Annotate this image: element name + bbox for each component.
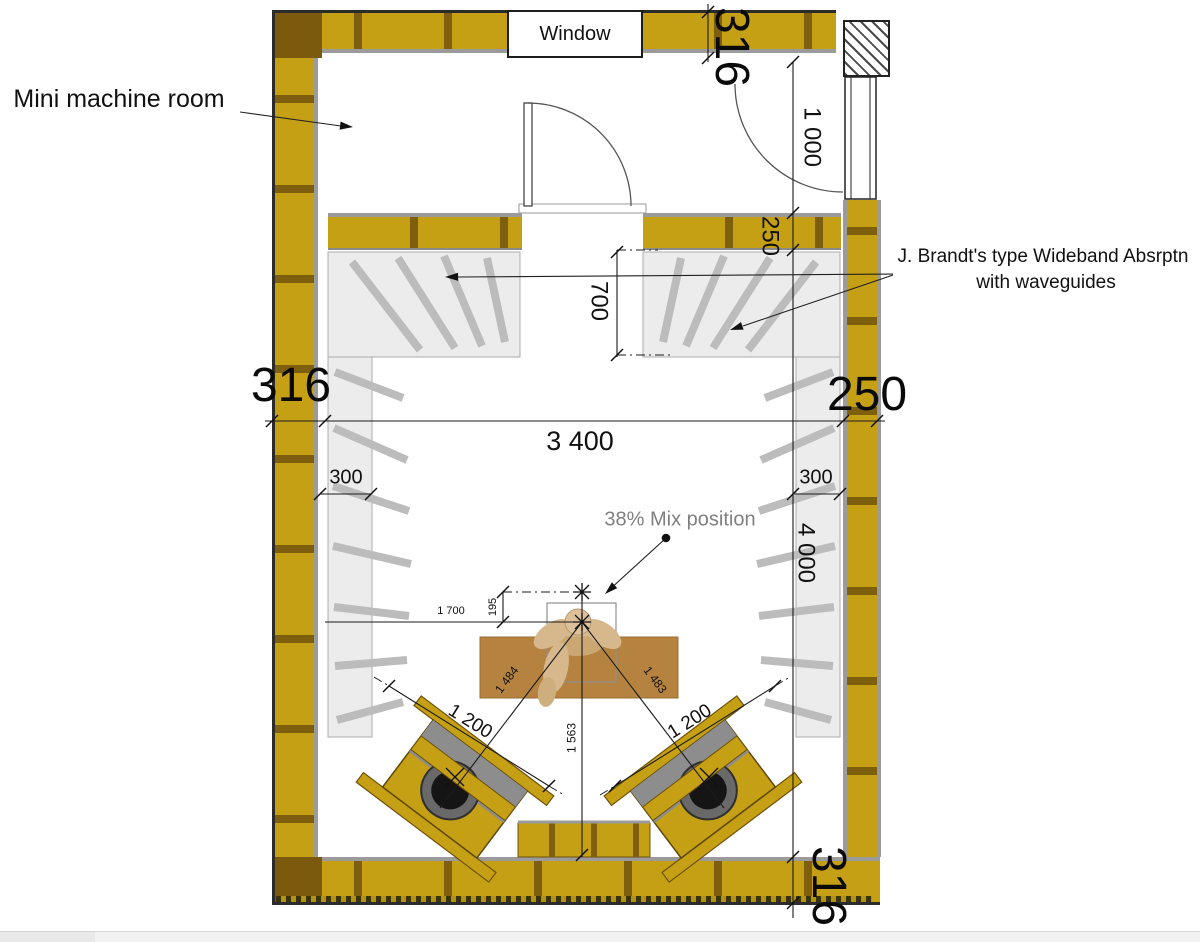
machine-room-label: Mini machine room xyxy=(13,86,224,112)
top-left-corner-block xyxy=(272,10,322,58)
dim-front-absorber: 700 xyxy=(586,281,611,321)
dim-right-absorber: 300 xyxy=(799,468,832,489)
dim-inner-wall: 250 xyxy=(757,216,782,256)
inner-wall-right-segment xyxy=(643,213,841,250)
mix-position-label: 38% Mix position xyxy=(604,510,755,531)
waveguide-fins xyxy=(333,256,835,720)
dim-left-absorber: 300 xyxy=(329,468,362,489)
center-bass-trap xyxy=(518,822,650,857)
bottom-wall-texture xyxy=(276,896,872,902)
bottom-edge-strip xyxy=(0,931,1200,942)
machine-room-door xyxy=(519,103,646,213)
bottom-edge-strip-left xyxy=(0,931,95,942)
dimension-lines xyxy=(265,4,885,918)
window-box: Window xyxy=(507,10,643,58)
dim-right-speaker-span: 1 200 xyxy=(665,701,716,743)
dimension-ticks xyxy=(266,6,883,909)
leader-lines xyxy=(240,112,893,591)
absorber-note-line2: with waveguides xyxy=(976,273,1115,293)
dim-top-wall: 316 xyxy=(706,7,756,87)
hatched-corner-block xyxy=(843,20,890,77)
floor-plan: Window xyxy=(0,0,1200,942)
left-wall xyxy=(272,10,318,905)
engineer-figure xyxy=(528,609,626,708)
chair xyxy=(547,603,616,682)
dim-room-width: 3 400 xyxy=(546,427,614,455)
absorber-panels xyxy=(328,252,840,737)
dim-left-speaker-span: 1 200 xyxy=(445,701,496,743)
dim-machine-room-depth: 1 000 xyxy=(799,107,824,167)
dim-left-speaker-to-mix: 1 484 xyxy=(493,664,521,696)
axis-cross-marks xyxy=(446,768,718,786)
dim-room-length: 4 000 xyxy=(793,523,818,583)
right-wall xyxy=(843,200,881,857)
dim-bottom-wall: 316 xyxy=(803,846,853,926)
dim-left-wall: 316 xyxy=(251,361,331,411)
dim-right-wall: 250 xyxy=(827,370,907,420)
plan-linework xyxy=(0,0,1200,942)
dim-mix-to-rear: 1 563 xyxy=(566,723,579,753)
inner-wall-left-segment xyxy=(328,213,522,250)
dim-listener-from-left: 1 700 xyxy=(437,606,465,618)
mix-position-marks xyxy=(573,583,591,631)
absorber-note-line1: J. Brandt's type Wideband Absrptn xyxy=(898,247,1189,267)
dim-listener-offset: 195 xyxy=(488,598,500,616)
dim-right-speaker-to-mix: 1 483 xyxy=(641,664,669,696)
window-label: Window xyxy=(539,23,610,46)
